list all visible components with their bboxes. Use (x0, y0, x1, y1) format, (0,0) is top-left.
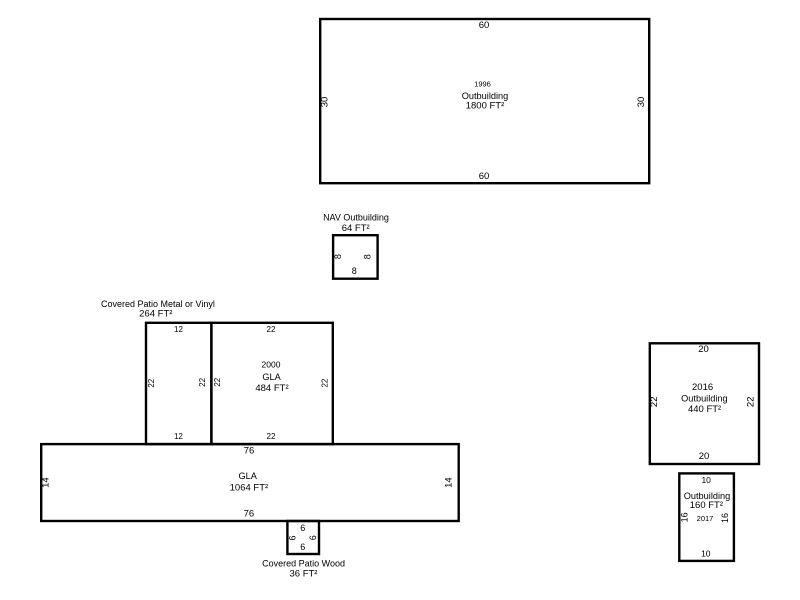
svg-text:8: 8 (362, 254, 372, 259)
svg-text:1800 FT²: 1800 FT² (466, 100, 505, 111)
svg-text:2000: 2000 (262, 359, 281, 369)
svg-text:1064 FT²: 1064 FT² (230, 483, 269, 494)
svg-text:Outbuilding: Outbuilding (462, 91, 508, 101)
svg-text:8: 8 (352, 266, 357, 276)
svg-text:160 FT²: 160 FT² (690, 500, 723, 511)
svg-text:440 FT²: 440 FT² (688, 404, 721, 415)
svg-text:22: 22 (321, 378, 330, 387)
svg-text:22: 22 (198, 377, 207, 386)
svg-text:22: 22 (745, 397, 756, 408)
svg-text:8: 8 (333, 254, 343, 259)
svg-text:6: 6 (300, 523, 305, 533)
svg-text:Covered Patio Metal or Vinyl: Covered Patio Metal or Vinyl (101, 299, 215, 309)
svg-text:20: 20 (699, 451, 710, 462)
svg-text:6: 6 (287, 535, 297, 540)
svg-text:22: 22 (267, 325, 276, 334)
svg-text:30: 30 (319, 97, 330, 108)
svg-text:12: 12 (174, 325, 183, 334)
svg-text:22: 22 (649, 397, 660, 408)
svg-text:NAV Outbuilding: NAV Outbuilding (323, 213, 389, 223)
svg-text:264 FT²: 264 FT² (139, 309, 172, 320)
svg-text:10: 10 (701, 475, 711, 485)
svg-text:484 FT²: 484 FT² (255, 383, 288, 394)
svg-text:20: 20 (698, 344, 709, 355)
svg-text:76: 76 (244, 508, 255, 519)
svg-text:16: 16 (720, 513, 730, 523)
svg-text:6: 6 (308, 535, 318, 540)
svg-text:1996: 1996 (474, 80, 491, 89)
svg-text:10: 10 (701, 548, 711, 558)
svg-text:14: 14 (41, 477, 52, 488)
svg-text:6: 6 (300, 542, 305, 552)
svg-text:GLA: GLA (239, 471, 258, 481)
svg-text:2016: 2016 (692, 382, 713, 393)
svg-text:16: 16 (680, 512, 690, 522)
svg-text:Outbuilding: Outbuilding (681, 393, 727, 403)
svg-text:GLA: GLA (262, 372, 281, 382)
svg-text:60: 60 (479, 20, 490, 31)
svg-text:64 FT²: 64 FT² (342, 223, 370, 234)
svg-text:22: 22 (147, 378, 156, 387)
svg-text:76: 76 (244, 446, 255, 457)
svg-text:36 FT²: 36 FT² (290, 569, 318, 580)
svg-text:Covered Patio Wood: Covered Patio Wood (262, 559, 345, 569)
svg-text:22: 22 (213, 377, 222, 386)
svg-text:22: 22 (267, 432, 276, 441)
svg-text:12: 12 (174, 432, 183, 441)
svg-text:2017: 2017 (697, 514, 714, 523)
svg-text:14: 14 (444, 477, 455, 488)
svg-text:30: 30 (636, 97, 647, 108)
svg-text:60: 60 (479, 171, 490, 182)
